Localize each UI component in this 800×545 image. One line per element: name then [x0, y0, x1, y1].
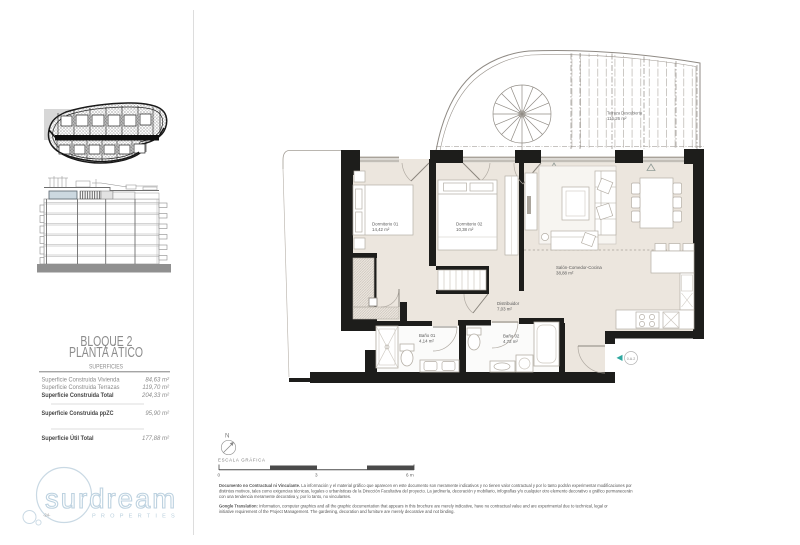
svg-text:Dormitorio 01: Dormitorio 01	[372, 222, 399, 227]
svg-text:initiative requirement of the: initiative requirement of the Project Ma…	[219, 509, 455, 514]
svg-text:PROPERTIES: PROPERTIES	[92, 514, 180, 520]
svg-text:4,72 m²: 4,72 m²	[503, 339, 518, 344]
svg-text:SUPERFICIES: SUPERFICIES	[89, 364, 123, 371]
svg-text:Distribuidor: Distribuidor	[497, 301, 520, 306]
svg-text:-24-: -24-	[43, 513, 51, 518]
svg-text:distintos motivos, tales como: distintos motivos, tales como exigencias…	[219, 489, 633, 494]
svg-text:6 m: 6 m	[406, 473, 414, 478]
svg-text:ESCALA GRÁFICA: ESCALA GRÁFICA	[218, 458, 266, 463]
svg-text:PLANTA ÁTICO: PLANTA ÁTICO	[69, 344, 143, 361]
svg-text:10,38 m²: 10,38 m²	[456, 227, 474, 232]
svg-text:Documento no Contractual ni Vi: Documento no Contractual ni Vinculante. …	[219, 483, 632, 488]
svg-text:Salón-Comedor-Cocina: Salón-Comedor-Cocina	[556, 265, 602, 270]
svg-text:Google Translation: Informatio: Google Translation: Information, compute…	[219, 504, 608, 509]
svg-text:0.A.2: 0.A.2	[627, 357, 635, 361]
svg-text:84,63 m²: 84,63 m²	[145, 378, 170, 384]
svg-text:0: 0	[218, 473, 221, 478]
svg-text:204,33 m²: 204,33 m²	[141, 393, 170, 399]
svg-text:116,26 m²: 116,26 m²	[607, 116, 627, 121]
svg-text:Superficie Útil Total: Superficie Útil Total	[42, 435, 94, 442]
svg-text:surdream: surdream	[45, 483, 177, 514]
svg-text:Superficie Construida Vivienda: Superficie Construida Vivienda	[42, 378, 121, 384]
svg-text:Baño 01: Baño 01	[419, 333, 436, 338]
svg-text:Terraza Descubierta: Terraza Descubierta	[607, 111, 642, 116]
svg-text:Dormitorio 02: Dormitorio 02	[456, 222, 483, 227]
svg-text:177,88 m²: 177,88 m²	[142, 436, 170, 442]
svg-text:95,90 m²: 95,90 m²	[145, 411, 170, 417]
svg-text:Superficie Construida Terrazas: Superficie Construida Terrazas	[42, 385, 120, 391]
svg-text:14,42 m²: 14,42 m²	[372, 227, 390, 232]
svg-text:38,88 m²: 38,88 m²	[556, 271, 574, 276]
svg-text:Baño 02: Baño 02	[503, 334, 520, 339]
svg-text:4,14 m²: 4,14 m²	[419, 339, 434, 344]
svg-text:con una tendencia meramente de: con una tendencia meramente decorativa y…	[219, 494, 351, 499]
svg-text:Superficie Construida ppZC: Superficie Construida ppZC	[42, 411, 115, 417]
svg-text:3: 3	[315, 473, 318, 478]
svg-text:119,70 m²: 119,70 m²	[142, 385, 170, 391]
svg-text:Superficie Construida Total: Superficie Construida Total	[42, 393, 114, 399]
svg-text:7,03 m²: 7,03 m²	[497, 307, 512, 312]
svg-text:N: N	[225, 433, 229, 440]
